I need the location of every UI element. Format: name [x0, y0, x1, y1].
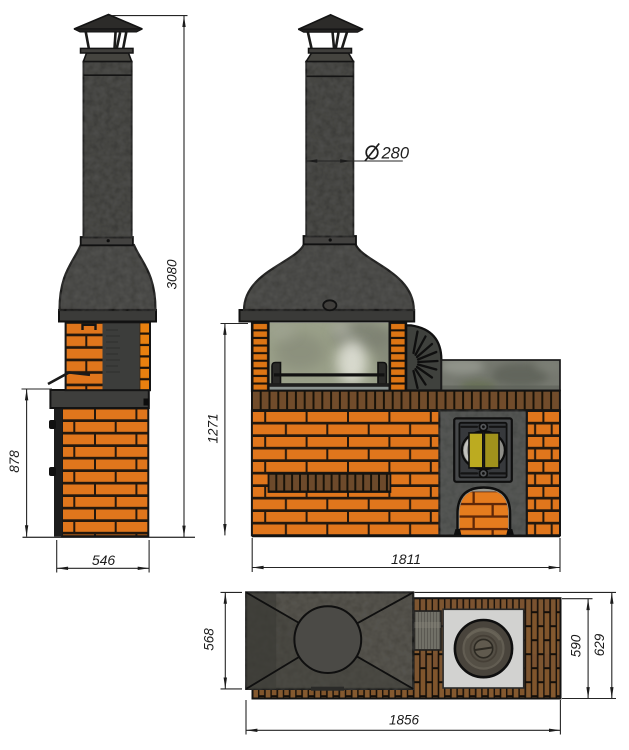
svg-text:1811: 1811: [391, 551, 421, 567]
svg-text:878: 878: [7, 450, 22, 473]
svg-text:546: 546: [92, 552, 116, 568]
svg-text:629: 629: [592, 633, 607, 656]
svg-text:3080: 3080: [165, 259, 180, 290]
svg-text:1271: 1271: [206, 413, 221, 443]
svg-text:590: 590: [569, 634, 584, 657]
svg-text:280: 280: [381, 145, 410, 163]
svg-text:568: 568: [202, 628, 217, 651]
svg-text:1856: 1856: [389, 713, 420, 728]
